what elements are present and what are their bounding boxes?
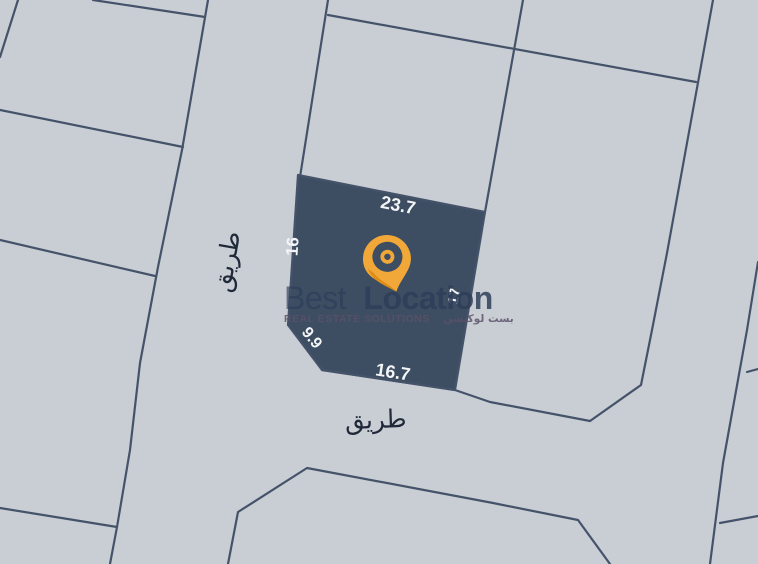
watermark-subtitle-en: REAL ESTATE SOLUTIONS xyxy=(284,313,430,325)
watermark: Best Location REAL ESTATE SOLUTIONS بست … xyxy=(284,280,514,325)
watermark-subtitle-ar: بست لوكيشن xyxy=(443,313,514,325)
plot-map-canvas[interactable]: 23.7 16 17 9.9 16.7 طريق طريق Best Locat… xyxy=(0,0,758,564)
watermark-brand-light: Best xyxy=(284,280,347,316)
parcel-map[interactable]: 23.7 16 17 9.9 16.7 طريق طريق Best Locat… xyxy=(0,0,758,564)
watermark-brand-bold: Location xyxy=(363,280,492,316)
watermark-subtitle: REAL ESTATE SOLUTIONS بست لوكيشن xyxy=(284,313,514,325)
bottom-road-label: طريق xyxy=(345,405,407,435)
dimension-left: 16 xyxy=(282,237,302,257)
